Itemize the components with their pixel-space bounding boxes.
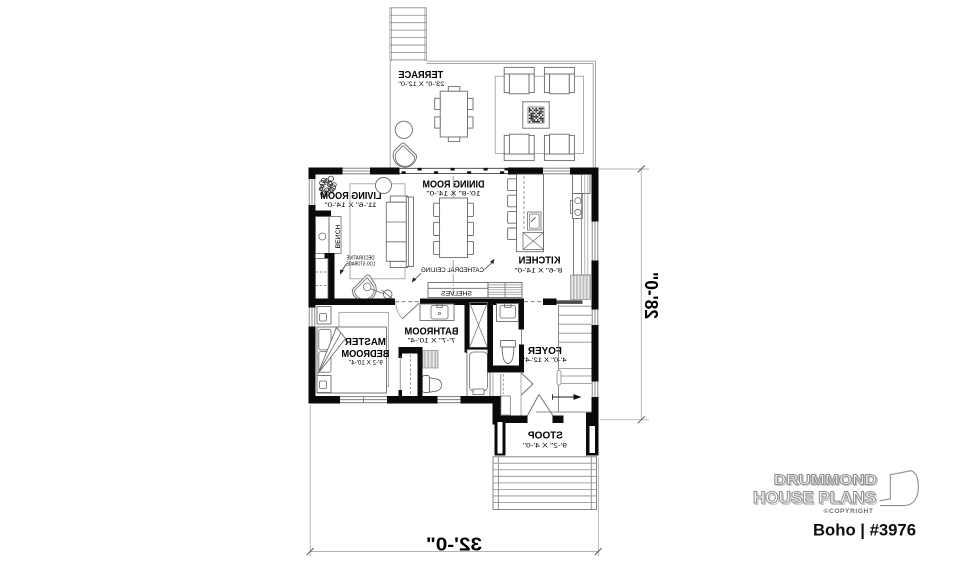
svg-text:STOOP: STOOP [527, 431, 562, 442]
svg-text:DINING ROOM: DINING ROOM [423, 179, 485, 190]
svg-text:LIVING ROOM: LIVING ROOM [321, 191, 382, 202]
svg-text:BENCH: BENCH [333, 224, 340, 248]
svg-text:Boho | #3976: Boho | #3976 [813, 522, 916, 540]
svg-text:DRUMMOND: DRUMMOND [774, 472, 877, 488]
svg-text:SHELVES: SHELVES [441, 291, 472, 298]
svg-text:FOYER: FOYER [528, 346, 562, 357]
svg-text:9'-2 X 10'-4": 9'-2 X 10'-4" [348, 360, 383, 367]
svg-text:23'-0" X 12'-0": 23'-0" X 12'-0" [398, 81, 445, 88]
svg-text:9'-2" X 4'-0": 9'-2" X 4'-0" [522, 442, 567, 449]
svg-text:BEDROOM: BEDROOM [341, 349, 389, 360]
svg-text:7'-7" X 10'-4": 7'-7" X 10'-4" [407, 337, 456, 344]
svg-text:4'-0" X 12'-4": 4'-0" X 12'-4" [522, 357, 567, 364]
svg-text:28'-0": 28'-0" [641, 272, 661, 319]
svg-text:TERRACE: TERRACE [398, 70, 443, 81]
svg-text:32'-0": 32'-0" [426, 535, 482, 555]
svg-text:©COPYRIGHT: ©COPYRIGHT [824, 507, 874, 515]
svg-text:LOG STORAGE: LOG STORAGE [345, 262, 375, 268]
svg-text:10'-8" X 14'-0": 10'-8" X 14'-0" [426, 191, 481, 198]
svg-text:CATHEDRAL CEILING: CATHEDRAL CEILING [421, 267, 484, 274]
svg-text:MASTER: MASTER [345, 337, 386, 348]
svg-text:BATHROOM: BATHROOM [405, 326, 459, 337]
svg-text:HOUSE PLANS: HOUSE PLANS [753, 489, 876, 507]
svg-text:KITCHEN: KITCHEN [519, 256, 561, 267]
svg-text:8'-6" X 14'-0": 8'-6" X 14'-0" [514, 267, 563, 274]
